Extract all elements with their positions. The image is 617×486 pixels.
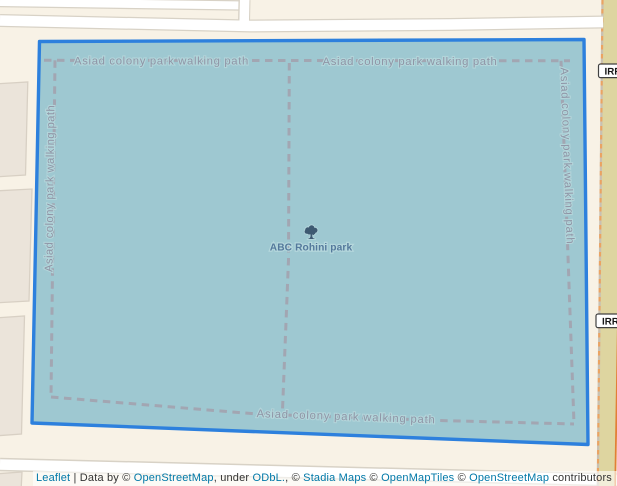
svg-text:Asiad colony park walking path: Asiad colony park walking path: [323, 56, 498, 68]
svg-text:ABC Rohini park: ABC Rohini park: [270, 243, 353, 254]
svg-text:Asiad colony park walking path: Asiad colony park walking path: [43, 105, 57, 272]
svg-text:Asiad colony park walking path: Asiad colony park walking path: [74, 55, 249, 67]
